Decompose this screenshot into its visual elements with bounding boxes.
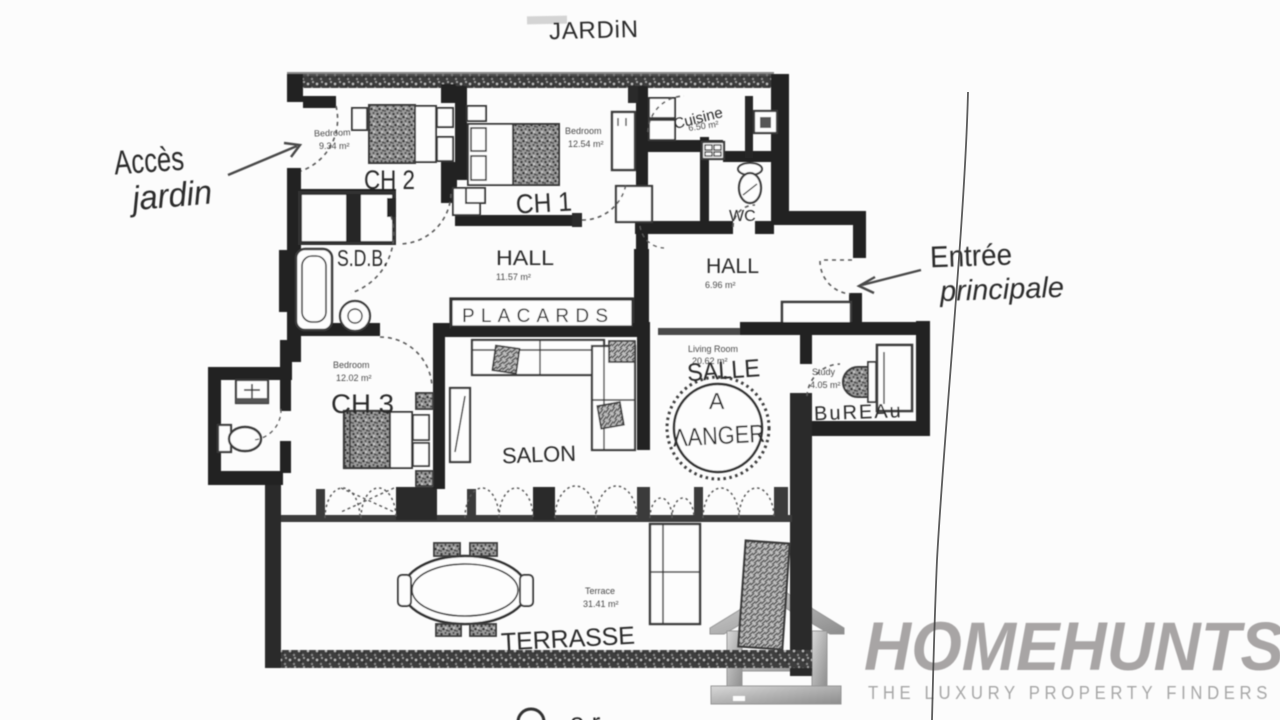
svg-text:HALL: HALL (706, 255, 759, 278)
svg-text:Study: Study (812, 367, 836, 377)
svg-text:Living Room: Living Room (688, 344, 738, 354)
svg-text:Bedroom: Bedroom (314, 127, 351, 138)
svg-text:31.41 m²: 31.41 m² (583, 599, 619, 609)
svg-text:jardin: jardin (127, 173, 214, 218)
svg-text:12.54 m²: 12.54 m² (568, 139, 604, 149)
svg-text:Terrace: Terrace (585, 586, 615, 596)
svg-text:12.02 m²: 12.02 m² (336, 373, 372, 383)
svg-text:HALL: HALL (496, 247, 554, 270)
svg-text:4.05 m²: 4.05 m² (810, 380, 841, 390)
svg-text:SALLE: SALLE (686, 354, 761, 387)
svg-text:PLACARDS: PLACARDS (462, 306, 612, 327)
svg-text:HOMEHUNTS: HOMEHUNTS (864, 608, 1280, 685)
svg-text:BuREAu: BuREAu (814, 400, 903, 425)
svg-text:Entrée: Entrée (930, 239, 1013, 275)
svg-text:11.57 m²: 11.57 m² (496, 272, 531, 282)
svg-text:CH 1: CH 1 (515, 187, 572, 220)
svg-text:WC: WC (729, 208, 756, 225)
svg-text:S.D.B.: S.D.B. (337, 245, 388, 271)
svg-text:a r: a r (570, 707, 601, 720)
svg-text:JARDiN: JARDiN (549, 16, 643, 45)
svg-text:Bedroom: Bedroom (333, 360, 370, 370)
svg-text:6.96 m²: 6.96 m² (705, 280, 736, 290)
svg-text:CH 3: CH 3 (331, 389, 394, 419)
svg-text:9.34 m²: 9.34 m² (319, 141, 350, 151)
svg-text:SALON: SALON (502, 441, 579, 469)
svg-text:A: A (709, 388, 725, 414)
svg-text:CH 2: CH 2 (364, 165, 415, 195)
svg-text:ΛANGER: ΛANGER (672, 420, 765, 453)
svg-text:THE LUXURY PROPERTY FINDERS: THE LUXURY PROPERTY FINDERS (868, 683, 1272, 703)
svg-text:Bedroom: Bedroom (565, 126, 602, 136)
